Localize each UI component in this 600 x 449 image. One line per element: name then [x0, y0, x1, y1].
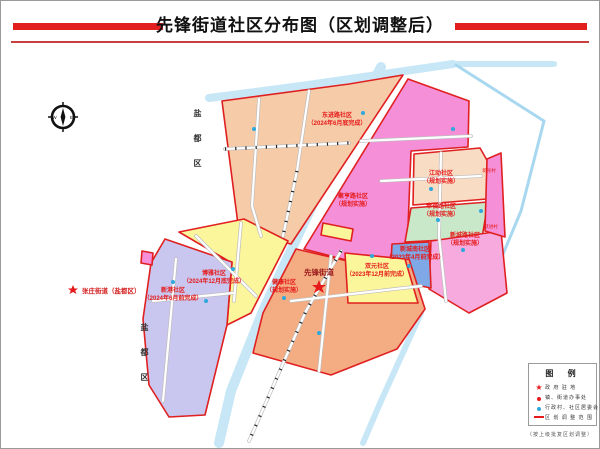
- region-label: 江动社区: [429, 169, 453, 177]
- region-status: （2024年6月底完成）: [308, 119, 367, 127]
- region-status: （2024年6月前完成）: [144, 294, 203, 302]
- region-status: （2024年12月底完成）: [183, 277, 245, 285]
- committee-dot: [252, 127, 256, 131]
- committee-dot: [479, 209, 483, 213]
- committee-dot: [171, 280, 175, 284]
- region-small-west: [141, 251, 153, 265]
- region-status: （规划实施）: [423, 177, 459, 185]
- region-label: 新港社区: [161, 286, 185, 294]
- region-label: 幸福路社区: [426, 202, 456, 210]
- committee-dot: [429, 187, 433, 191]
- committee-dot: [461, 248, 465, 252]
- legend-box: 图 例 ★ 政 府 驻 地 镇、街道办事处 行政村、社区居委会 区 划 调 整 …: [528, 363, 597, 426]
- committee-dot: [451, 127, 455, 131]
- region-label: 双元社区: [365, 262, 389, 270]
- committee-dot: [231, 267, 235, 271]
- xianfeng-label: 先锋街道: [304, 267, 334, 277]
- legend-label: 区 划 调 整 范 围: [545, 414, 593, 421]
- map-caption: （按上级批复区划调整）: [527, 431, 593, 438]
- region-label: 聚亨路社区: [337, 192, 368, 200]
- legend-item-adjust-range: 区 划 调 整 范 围: [533, 412, 592, 422]
- zhangzhuang-marker: 张庄街道（盐都区）: [68, 285, 141, 295]
- committee-dot: [282, 296, 286, 300]
- region-status: （规划实施）: [335, 200, 371, 208]
- compass-rose: W E: [48, 102, 78, 132]
- region-status: （2023年12月前完成）: [346, 270, 408, 278]
- committee-dot: [361, 111, 365, 115]
- star-icon: [68, 285, 78, 294]
- star-icon: ★: [533, 382, 545, 392]
- region-status: （规划实施）: [423, 210, 459, 218]
- red-dot-icon: [533, 393, 545, 401]
- blue-dot-icon: [533, 403, 545, 411]
- committee-dot: [436, 218, 440, 222]
- legend-item-street-office: 镇、街道办事处: [533, 392, 592, 402]
- region-status: （规划实施）: [266, 286, 302, 294]
- legend-item-government: ★ 政 府 驻 地: [533, 382, 592, 392]
- region-status: （2023年4月前完成）: [386, 253, 445, 261]
- region-label: 博雅社区: [202, 269, 226, 277]
- committee-dot: [407, 264, 411, 268]
- legend-label: 行政村、社区居委会: [545, 404, 599, 411]
- district-label-yandu-south: 盐都区: [139, 323, 150, 398]
- region-label: 新城南社区: [400, 245, 430, 253]
- region-label: 健康社区: [272, 278, 296, 286]
- village-label: 跃进村: [484, 223, 498, 230]
- committee-dot: [204, 299, 208, 303]
- committee-dot: [317, 331, 321, 335]
- legend-title: 图 例: [535, 368, 592, 379]
- district-label-yandu-north: 盐都区: [192, 109, 203, 184]
- committee-dot: [370, 254, 374, 258]
- zhangzhuang-label: 张庄街道（盐都区）: [82, 286, 141, 295]
- legend-label: 镇、街道办事处: [545, 394, 587, 401]
- legend-label: 政 府 驻 地: [545, 384, 576, 391]
- map-page: 先锋街道社区分布图（区划调整后）: [0, 0, 600, 449]
- village-label: 新民村: [482, 167, 496, 174]
- red-line-icon: [533, 413, 545, 421]
- compass-east-label: E: [70, 115, 73, 120]
- legend-item-committee: 行政村、社区居委会: [533, 402, 592, 412]
- region-label: 新城路社区: [450, 231, 480, 239]
- region-xingang: [143, 239, 232, 417]
- district-map: 东进路社区 （2024年6月底完成） 江动社区 （规划实施） 幸福路社区 （规划…: [1, 1, 599, 448]
- region-label: 东进路社区: [322, 111, 352, 119]
- region-status: （规划实施）: [447, 239, 483, 247]
